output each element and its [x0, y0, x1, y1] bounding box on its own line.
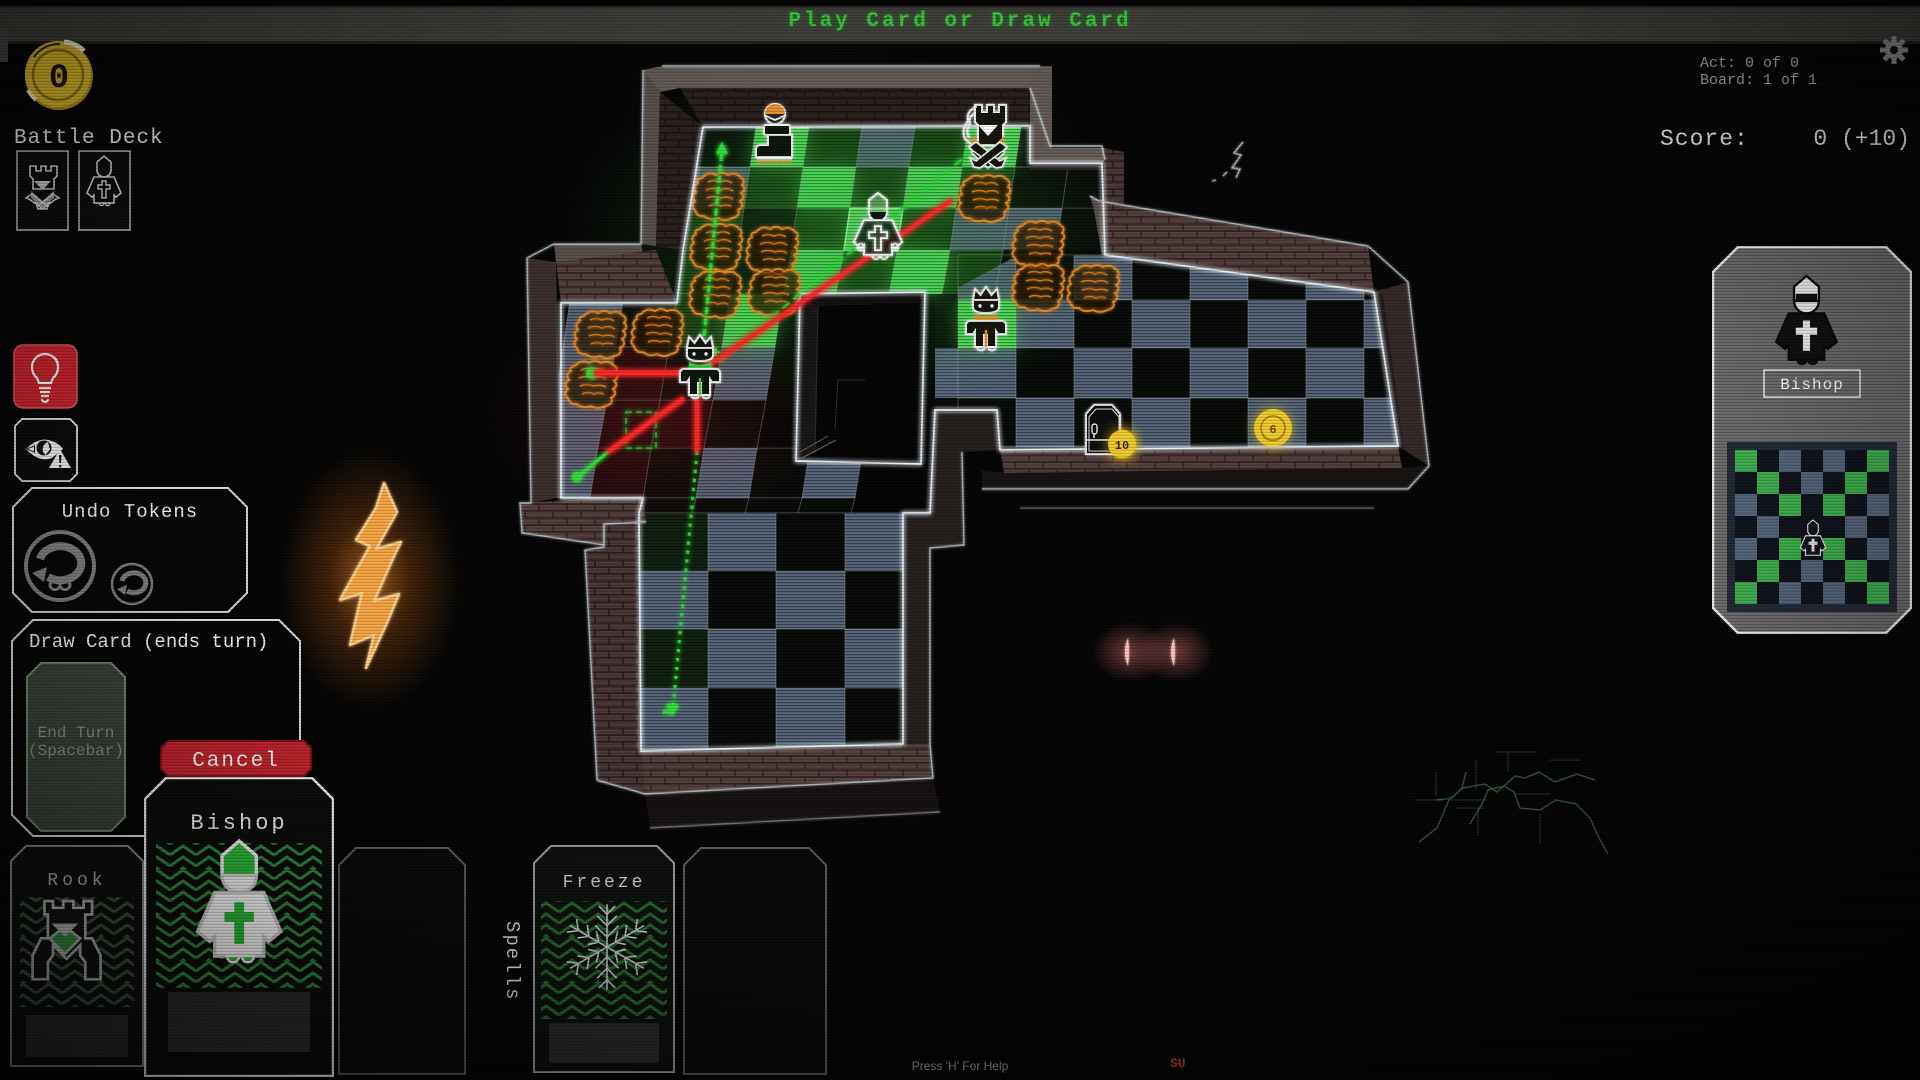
svg-text:End Turn: End Turn: [38, 724, 115, 742]
svg-text:0: 0: [49, 60, 69, 98]
svg-text:Bishop: Bishop: [1780, 376, 1844, 394]
svg-text:Rook: Rook: [47, 871, 106, 891]
svg-text:Bishop: Bishop: [190, 811, 287, 836]
svg-text:Undo Tokens: Undo Tokens: [62, 501, 198, 523]
svg-text:6: 6: [1269, 423, 1276, 437]
svg-text:(Spacebar): (Spacebar): [28, 742, 124, 760]
svg-text:Cancel: Cancel: [192, 750, 280, 773]
svg-text:10: 10: [1115, 439, 1129, 453]
svg-text:Freeze: Freeze: [563, 873, 646, 893]
svg-text:Draw Card (ends turn): Draw Card (ends turn): [29, 631, 268, 653]
